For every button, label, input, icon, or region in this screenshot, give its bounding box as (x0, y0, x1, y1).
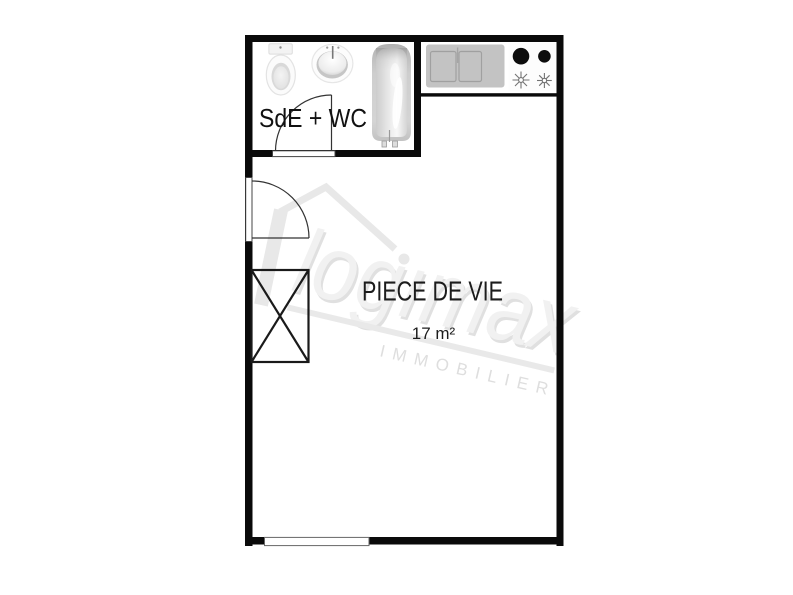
svg-text:PIECE DE VIE: PIECE DE VIE (362, 276, 503, 307)
svg-text:17 m²: 17 m² (412, 324, 456, 343)
svg-text:SdE + WC: SdE + WC (259, 103, 367, 133)
